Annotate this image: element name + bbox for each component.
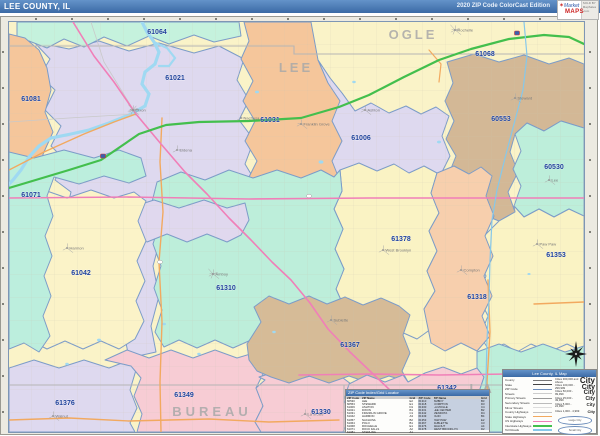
town-dot (300, 123, 302, 125)
zip-index-row: 61378WEST BROOKLYND2 (418, 427, 490, 430)
zip-label-61042: 61042 (71, 270, 91, 277)
town-dot (548, 179, 550, 181)
grid-tick-left (2, 17, 4, 434)
interstate-shield-icon (101, 154, 106, 158)
town-label: Amboy (216, 272, 228, 277)
town-label: Ashton (368, 108, 380, 113)
town-dot (212, 273, 214, 275)
lake (319, 160, 324, 163)
zip-index-left-column: ZIP CodeZIP NameGrid60530LEEE260553STEWA… (346, 396, 418, 433)
lake (272, 331, 276, 333)
town-dot (536, 243, 538, 245)
legend-city-samples: Cities 300,000 and AboveCityCities 100,0… (555, 377, 596, 435)
town-dot (304, 413, 306, 415)
town-dot (176, 149, 178, 151)
marketmaps-logo: ✶ Market MAPS SOLD BYMapSales.com (557, 0, 599, 20)
town-dot (52, 415, 54, 417)
compass-rose-icon (563, 341, 589, 367)
legend-city-item: Cities 1,000 - 4,999City (555, 408, 595, 414)
zip-label-60553: 60553 (491, 116, 511, 123)
legend-city-item: Cities 5,000 - 24,999City (555, 402, 595, 408)
town-label: Harmon (70, 246, 84, 251)
zip-label-61071: 61071 (21, 192, 41, 199)
zip-label-61378: 61378 (391, 236, 411, 243)
county-label-lee: LEE (279, 60, 313, 75)
town-dot (66, 247, 68, 249)
county-label-bureau: BUREAU (172, 404, 252, 419)
edition-label: 2020 ZIP Code ColorCast Edition (457, 3, 550, 9)
town-label: Paw Paw (540, 242, 557, 247)
zip-label-61021: 61021 (165, 75, 185, 82)
zip-label-61318: 61318 (467, 294, 487, 301)
town-dot (330, 319, 332, 321)
zip-label-61081: 61081 (21, 96, 41, 103)
legend-line-samples: CountyStateZIP CodeStreetsPrimary Street… (503, 377, 555, 435)
us-route-shield-icon (306, 194, 311, 198)
town-label: Lee (552, 178, 559, 183)
zip-label-61006: 61006 (351, 135, 371, 142)
us-route-shield-icon (157, 260, 162, 264)
zip-label-61349: 61349 (174, 392, 194, 399)
zip-index-panel: ZIP Code Index/Grid Locator ZIP CodeZIP … (345, 389, 490, 433)
town-dot (382, 249, 384, 251)
interstate-shield-icon (515, 31, 520, 35)
town-label: Steward (518, 96, 533, 101)
county-title: LEE COUNTY, IL (4, 2, 70, 11)
town-label: Sublette (334, 318, 349, 323)
town-dot (240, 117, 242, 119)
zip-index-right-column: ZIP CodeZIP NameGrid61310AMBOYB361318COM… (418, 396, 490, 433)
town-label: Nachusa (244, 116, 261, 121)
town-label: Dixon (136, 108, 146, 113)
town-label: Walnut (56, 414, 69, 419)
lake (527, 273, 530, 275)
lake (65, 363, 69, 365)
town-dot (454, 29, 456, 31)
legend-item: Toll Roads (505, 428, 555, 433)
section-road-grid (9, 22, 584, 432)
logo-brand-bottom: MAPS (565, 9, 584, 15)
town-label: Eldena (180, 148, 193, 153)
grid-tick-top (1, 18, 597, 20)
town-label: West Brooklyn (386, 248, 412, 253)
town-dot (514, 97, 516, 99)
map-canvas: DixonRochelleAmboyMendotaAshtonFranklin … (8, 21, 585, 433)
lake (97, 339, 101, 342)
county-label-ogle: OGLE (389, 27, 438, 42)
lake (437, 141, 441, 144)
legend-city-area-sample: Small City (558, 426, 592, 435)
legend-city-area-sample: Large City (558, 416, 592, 425)
town-label: Franklin Grove (304, 122, 331, 127)
map-legend: Lee County, IL Map CountyStateZIP CodeSt… (502, 369, 597, 434)
zip-label-61064: 61064 (147, 29, 167, 36)
lake (352, 81, 356, 83)
town-dot (364, 109, 366, 111)
town-dot (460, 269, 462, 271)
zip-index-row: 61081STERLINGA1 (346, 430, 418, 433)
town-label: Compton (464, 268, 480, 273)
zip-label-61376: 61376 (55, 400, 75, 407)
zip-label-61031: 61031 (260, 117, 280, 124)
town-dot (132, 109, 134, 111)
lake (255, 91, 259, 94)
zip-code-map: DixonRochelleAmboyMendotaAshtonFranklin … (9, 22, 584, 432)
zip-label-61330: 61330 (311, 409, 331, 416)
town-label: Rochelle (458, 28, 474, 33)
lake (197, 353, 201, 355)
title-bar: LEE COUNTY, IL 2020 ZIP Code ColorCast E… (0, 0, 600, 13)
zip-label-60530: 60530 (544, 164, 564, 171)
zip-label-61068: 61068 (475, 51, 495, 58)
zip-label-61310: 61310 (216, 285, 236, 292)
logo-brand: ✶ Market MAPS (558, 1, 581, 19)
zip-label-61367: 61367 (340, 342, 360, 349)
zip-label-61353: 61353 (546, 252, 566, 259)
